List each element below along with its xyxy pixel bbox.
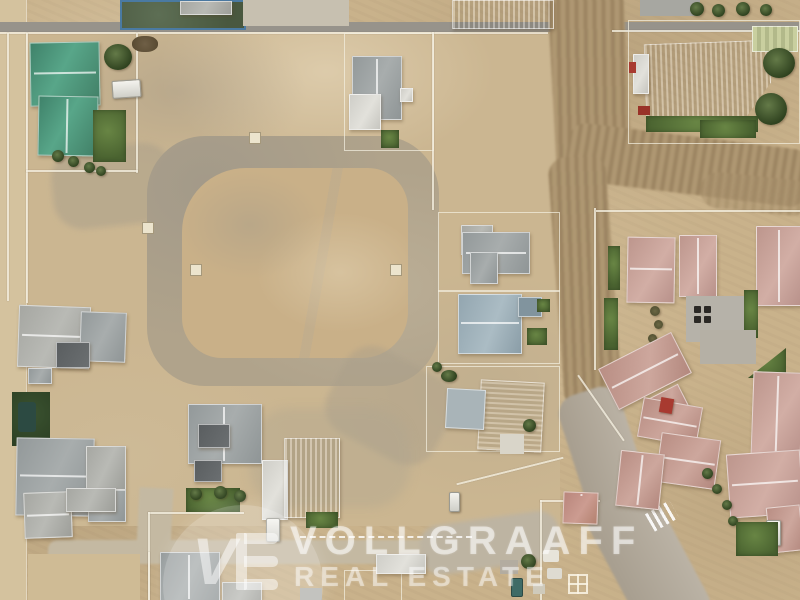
palm-tree (755, 93, 787, 125)
waste-bins (704, 306, 711, 313)
house-roof-panel (445, 388, 486, 430)
house-blue-gray-roof (458, 294, 522, 354)
red-shed (659, 397, 674, 414)
hedge (702, 468, 713, 479)
driveway (500, 434, 524, 454)
watermark-tagline-text: REAL ESTATE (294, 561, 550, 593)
watermark-monogram: V (192, 528, 302, 600)
palm-tree (763, 48, 795, 78)
boundary-wall (0, 32, 548, 34)
house-annex (28, 368, 52, 384)
concrete-pad (243, 0, 349, 26)
survey-marker (390, 264, 402, 276)
survey-marker (142, 222, 154, 234)
house-roof-fragment (180, 1, 232, 15)
house-annex (86, 446, 126, 490)
aerial-photo: V VOLLGRAAFF REAL ESTATE (0, 0, 800, 600)
tree (760, 4, 772, 16)
garden-lawn (736, 522, 778, 556)
watermark-monogram-bar (244, 556, 278, 567)
hedge (712, 484, 722, 494)
house-annex (66, 488, 116, 512)
house-pink-roof (751, 371, 800, 459)
grid-symbol (568, 574, 588, 594)
house-salmon-roof (655, 432, 721, 490)
concrete-pad (700, 330, 756, 364)
shrub (84, 162, 95, 173)
house-annex (194, 460, 222, 482)
house-corrugated-roof (284, 438, 340, 518)
garden-lawn (604, 298, 618, 350)
tree (690, 2, 704, 16)
red-chimney (629, 62, 636, 73)
watermark-monogram-bar (244, 579, 278, 590)
shrub (432, 362, 442, 372)
sand-yard (28, 554, 140, 600)
parcel-wall (26, 33, 28, 303)
house-slate-roof (452, 0, 554, 29)
tree (523, 419, 536, 432)
tree (712, 4, 725, 17)
garden-shed (400, 88, 413, 102)
tree (234, 490, 246, 502)
survey-marker (249, 132, 261, 144)
garden-lawn (93, 110, 126, 162)
parcel-wall (26, 170, 138, 172)
parcel-wall (432, 32, 434, 210)
parked-truck (449, 492, 460, 512)
parked-boat (111, 79, 141, 99)
parcel-wall (148, 552, 150, 600)
watermark-brand-text: VOLLGRAAFF (290, 519, 643, 564)
survey-marker (190, 264, 202, 276)
shrub (68, 156, 79, 167)
parcel-wall (594, 208, 596, 370)
parcel-wall (596, 210, 800, 212)
house-teal-roof (37, 95, 98, 156)
house-annex (470, 252, 498, 284)
rocks (132, 36, 158, 52)
shrub (52, 150, 64, 162)
house-pink-roof (679, 235, 717, 297)
hedge (722, 500, 732, 510)
garden-lawn (381, 130, 399, 148)
garden-lawn (700, 120, 756, 138)
swimming-pool (18, 402, 36, 432)
palm-tree (104, 44, 132, 70)
shrub (650, 306, 660, 316)
watermark-monogram-bar (244, 533, 278, 544)
red-stoep (638, 106, 650, 115)
tree (441, 370, 457, 382)
tree (190, 488, 202, 500)
waste-bins (694, 306, 701, 313)
tree (736, 2, 750, 16)
watermark-monogram-letter: V (192, 528, 236, 594)
waste-bins (704, 316, 711, 323)
house-annex (349, 94, 381, 130)
parcel-wall (136, 33, 138, 173)
garden-lawn (527, 328, 547, 345)
house-pink-roof (756, 226, 800, 306)
shrub (96, 166, 106, 176)
boundary-wall (7, 33, 9, 301)
waste-bins (694, 316, 701, 323)
house-annex (198, 424, 230, 448)
house-annex (633, 54, 649, 94)
tree (214, 486, 227, 499)
shrub (654, 320, 663, 329)
house-pink-roof (626, 237, 675, 304)
garden-lawn (608, 246, 620, 290)
house-annex (56, 342, 90, 368)
house-salmon-roof (615, 450, 665, 510)
garden-lawn (537, 299, 550, 312)
